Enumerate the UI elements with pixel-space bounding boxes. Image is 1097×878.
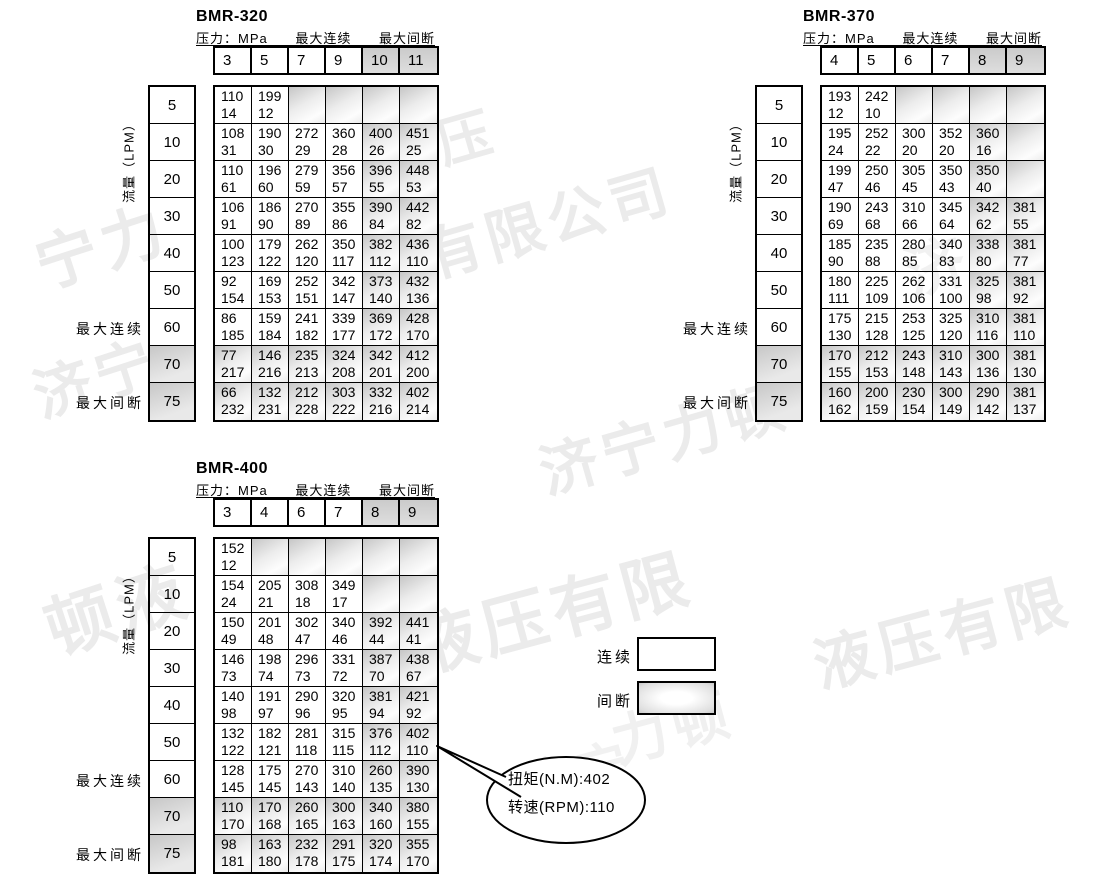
torque-value: 325	[976, 273, 1006, 290]
flow-value-column: 51020304050607075	[755, 85, 803, 422]
data-cell	[326, 87, 363, 124]
data-grid: 1101419912108311903027229360284002645125…	[213, 85, 439, 422]
watermark: 有限公司	[412, 143, 681, 294]
torque-value: 201	[258, 614, 288, 631]
torque-value: 380	[406, 799, 437, 816]
speed-value: 59	[295, 179, 325, 196]
pressure-header-cell: 9	[1007, 48, 1044, 73]
speed-value: 110	[406, 742, 437, 759]
torque-value: 442	[406, 199, 437, 216]
max-intermittent-row-label: 最大间断	[74, 393, 144, 413]
data-cell	[363, 576, 400, 613]
speed-value: 72	[332, 668, 362, 685]
speed-value: 70	[369, 668, 399, 685]
torque-value: 252	[865, 125, 895, 142]
speed-value: 30	[258, 142, 288, 159]
torque-value: 438	[406, 651, 437, 668]
speed-value: 97	[258, 705, 288, 722]
speed-value: 90	[258, 216, 288, 233]
speed-value: 159	[865, 401, 895, 418]
torque-value: 300	[976, 347, 1006, 364]
torque-value: 324	[332, 347, 362, 364]
speed-value: 130	[406, 779, 437, 796]
data-cell	[896, 87, 933, 124]
torque-value: 402	[406, 725, 437, 742]
torque-value: 241	[295, 310, 325, 327]
torque-value: 310	[976, 310, 1006, 327]
speed-value: 83	[939, 253, 969, 270]
speed-value: 49	[221, 631, 251, 648]
data-cell: 175145	[252, 761, 289, 798]
table-bmr-370: BMR-370 压力：MPa 最大连续 最大间断 456789 流量（LPM） …	[755, 8, 1047, 428]
data-cell: 382112	[363, 235, 400, 272]
data-cell	[1007, 161, 1044, 198]
speed-value: 217	[221, 364, 251, 381]
torque-value: 193	[828, 88, 858, 105]
torque-value: 212	[295, 384, 325, 401]
data-cell: 402214	[400, 383, 437, 420]
speed-value: 168	[258, 816, 288, 833]
data-cell: 182121	[252, 724, 289, 761]
data-cell	[289, 87, 326, 124]
pressure-header-cell: 7	[289, 48, 326, 73]
data-cell: 331100	[933, 272, 970, 309]
flow-value-column: 51020304050607075	[148, 85, 196, 422]
torque-value: 332	[369, 384, 399, 401]
torque-value: 432	[406, 273, 437, 290]
data-cell: 402110	[400, 724, 437, 761]
flow-value-cell: 50	[150, 724, 194, 761]
data-cell: 30247	[289, 613, 326, 650]
torque-value: 77	[221, 347, 251, 364]
speed-value: 14	[221, 105, 251, 122]
data-cell: 132231	[252, 383, 289, 420]
pressure-header-cell: 9	[326, 48, 363, 73]
data-cell: 39084	[363, 198, 400, 235]
speed-value: 111	[828, 290, 858, 307]
data-cell: 253125	[896, 309, 933, 346]
data-cell: 200159	[859, 383, 896, 420]
torque-value: 262	[295, 236, 325, 253]
data-cell: 19524	[822, 124, 859, 161]
torque-value: 191	[258, 688, 288, 705]
data-cell: 19947	[822, 161, 859, 198]
speed-value: 121	[258, 742, 288, 759]
data-cell: 34564	[933, 198, 970, 235]
speed-value: 142	[976, 401, 1006, 418]
data-cell: 175130	[822, 309, 859, 346]
flow-value-cell: 40	[150, 687, 194, 724]
max-intermittent-row-label: 最大间断	[74, 845, 144, 865]
data-cell: 369172	[363, 309, 400, 346]
torque-value: 235	[295, 347, 325, 364]
speed-value: 24	[221, 594, 251, 611]
speed-value: 185	[221, 327, 251, 344]
speed-value: 94	[369, 705, 399, 722]
max-intermittent-header-label: 最大间断	[986, 28, 1042, 44]
data-cell: 243148	[896, 346, 933, 383]
data-cell: 38770	[363, 650, 400, 687]
speed-value: 148	[902, 364, 932, 381]
data-cell	[400, 539, 437, 576]
speed-value: 41	[406, 631, 437, 648]
watermark: 液压有限	[803, 553, 1081, 705]
speed-value: 140	[332, 779, 362, 796]
speed-value: 43	[939, 179, 969, 196]
data-cell: 212153	[859, 346, 896, 383]
speed-value: 67	[406, 668, 437, 685]
torque-value: 152	[221, 540, 251, 557]
torque-value: 190	[258, 125, 288, 142]
speed-value: 231	[258, 401, 288, 418]
data-cell: 19069	[822, 198, 859, 235]
data-cell	[970, 87, 1007, 124]
data-cell: 39244	[363, 613, 400, 650]
speed-value: 74	[258, 668, 288, 685]
flow-value-cell: 20	[150, 161, 194, 198]
torque-value: 350	[939, 162, 969, 179]
pressure-header-cell: 6	[289, 500, 326, 525]
flow-axis-label: 流量（LPM）	[119, 117, 138, 203]
torque-value: 310	[332, 762, 362, 779]
torque-value: 441	[406, 614, 437, 631]
speed-value: 182	[295, 327, 325, 344]
data-cell: 38155	[1007, 198, 1044, 235]
data-cell: 350117	[326, 235, 363, 272]
speed-value: 92	[1013, 290, 1044, 307]
data-cell: 98181	[215, 835, 252, 872]
torque-value: 169	[258, 273, 288, 290]
data-cell: 320174	[363, 835, 400, 872]
data-cell: 43867	[400, 650, 437, 687]
table-bmr-400: BMR-400 压力：MPa 最大连续 最大间断 346789 流量（LPM） …	[148, 460, 440, 878]
torque-value: 381	[1013, 384, 1044, 401]
torque-value: 205	[258, 577, 288, 594]
data-cell: 11014	[215, 87, 252, 124]
max-continuous-row-label: 最大连续	[74, 771, 144, 791]
flow-value-cell: 30	[150, 650, 194, 687]
torque-value: 212	[865, 347, 895, 364]
data-cell: 373140	[363, 272, 400, 309]
speed-value: 147	[332, 290, 362, 307]
data-cell: 15049	[215, 613, 252, 650]
data-cell	[363, 87, 400, 124]
flow-value-cell: 75	[150, 835, 194, 872]
speed-value: 61	[221, 179, 251, 196]
data-cell: 310116	[970, 309, 1007, 346]
data-cell: 390130	[400, 761, 437, 798]
speed-value: 116	[976, 327, 1006, 344]
data-cell: 290142	[970, 383, 1007, 420]
torque-value: 215	[865, 310, 895, 327]
torque-value: 110	[221, 799, 251, 816]
data-cell: 34262	[970, 198, 1007, 235]
data-cell: 310140	[326, 761, 363, 798]
max-intermittent-header-label: 最大间断	[379, 480, 435, 496]
torque-value: 300	[902, 125, 932, 142]
data-cell: 110170	[215, 798, 252, 835]
data-cell: 169153	[252, 272, 289, 309]
data-cell: 376112	[363, 724, 400, 761]
speed-value: 95	[332, 705, 362, 722]
data-cell: 45125	[400, 124, 437, 161]
speed-value: 86	[332, 216, 362, 233]
data-cell: 86185	[215, 309, 252, 346]
torque-value: 154	[221, 577, 251, 594]
data-cell	[1007, 124, 1044, 161]
max-continuous-row-label: 最大连续	[681, 319, 751, 339]
data-cell: 34046	[326, 613, 363, 650]
flow-axis-label: 流量（LPM）	[119, 569, 138, 655]
torque-value: 199	[828, 162, 858, 179]
torque-value: 180	[828, 273, 858, 290]
speed-value: 201	[369, 364, 399, 381]
torque-value: 436	[406, 236, 437, 253]
torque-value: 272	[295, 125, 325, 142]
pressure-header-cells: 346789	[213, 498, 439, 527]
flow-value-cell: 5	[150, 539, 194, 576]
speed-value: 60	[258, 179, 288, 196]
speed-value: 64	[939, 216, 969, 233]
torque-value: 262	[902, 273, 932, 290]
speed-value: 69	[828, 216, 858, 233]
pressure-header-cell: 10	[363, 48, 400, 73]
torque-value: 381	[1013, 347, 1044, 364]
legend-continuous-label: 连续	[597, 646, 633, 667]
torque-value: 340	[369, 799, 399, 816]
data-cell: 342147	[326, 272, 363, 309]
torque-value: 232	[295, 836, 325, 853]
torque-value: 300	[939, 384, 969, 401]
torque-value: 303	[332, 384, 362, 401]
speed-value: 177	[332, 327, 362, 344]
torque-value: 400	[369, 125, 399, 142]
flow-value-cell: 60	[150, 761, 194, 798]
torque-value: 195	[828, 125, 858, 142]
legend-intermittent-label: 间断	[597, 690, 633, 711]
data-cell: 35657	[326, 161, 363, 198]
torque-value: 387	[369, 651, 399, 668]
data-cell: 291175	[326, 835, 363, 872]
torque-value: 428	[406, 310, 437, 327]
speed-value: 110	[406, 253, 437, 270]
data-cell	[1007, 87, 1044, 124]
speed-value: 91	[221, 216, 251, 233]
data-cell	[252, 539, 289, 576]
speed-value: 208	[332, 364, 362, 381]
data-cell: 30020	[896, 124, 933, 161]
speed-value: 26	[369, 142, 399, 159]
speed-value: 149	[939, 401, 969, 418]
torque-value: 310	[902, 199, 932, 216]
data-cell: 30818	[289, 576, 326, 613]
pressure-header-cell: 8	[970, 48, 1007, 73]
data-cell: 19874	[252, 650, 289, 687]
data-cell: 170155	[822, 346, 859, 383]
flow-value-cell: 70	[150, 346, 194, 383]
data-cell: 32598	[970, 272, 1007, 309]
torque-value: 279	[295, 162, 325, 179]
data-cell: 380155	[400, 798, 437, 835]
speed-value: 46	[332, 631, 362, 648]
torque-value: 291	[332, 836, 362, 853]
data-cell: 170168	[252, 798, 289, 835]
torque-value: 448	[406, 162, 437, 179]
flow-value-cell: 30	[757, 198, 801, 235]
speed-value: 45	[902, 179, 932, 196]
callout-text: 扭矩(N.M):402 转速(RPM):110	[508, 766, 615, 822]
data-cell: 29096	[289, 687, 326, 724]
speed-value: 122	[258, 253, 288, 270]
data-cell: 252151	[289, 272, 326, 309]
speed-value: 130	[1013, 364, 1044, 381]
speed-value: 31	[221, 142, 251, 159]
speed-value: 143	[295, 779, 325, 796]
data-cell: 44282	[400, 198, 437, 235]
torque-value: 331	[332, 651, 362, 668]
torque-value: 92	[221, 273, 251, 290]
data-cell: 232178	[289, 835, 326, 872]
data-cell: 19912	[252, 87, 289, 124]
flow-value-cell: 75	[150, 383, 194, 420]
torque-value: 182	[258, 725, 288, 742]
speed-value: 214	[406, 401, 437, 418]
data-cell: 31066	[896, 198, 933, 235]
torque-value: 340	[332, 614, 362, 631]
torque-value: 302	[295, 614, 325, 631]
speed-value: 16	[976, 142, 1006, 159]
data-cell	[326, 539, 363, 576]
pressure-header-cell: 7	[326, 500, 363, 525]
torque-value: 451	[406, 125, 437, 142]
speed-value: 120	[295, 253, 325, 270]
data-cell: 310143	[933, 346, 970, 383]
data-cell: 27089	[289, 198, 326, 235]
torque-value: 175	[258, 762, 288, 779]
torque-value: 421	[406, 688, 437, 705]
data-cell: 42192	[400, 687, 437, 724]
data-cell: 36016	[970, 124, 1007, 161]
speed-value: 84	[369, 216, 399, 233]
speed-value: 136	[406, 290, 437, 307]
table-header-row: 压力：MPa 最大连续 最大间断	[196, 480, 435, 498]
data-cell: 35043	[933, 161, 970, 198]
pressure-header-cell: 3	[215, 48, 252, 73]
torque-value: 108	[221, 125, 251, 142]
data-cell: 33880	[970, 235, 1007, 272]
speed-value: 155	[828, 364, 858, 381]
speed-value: 175	[332, 853, 362, 870]
speed-value: 12	[828, 105, 858, 122]
data-cell: 20148	[252, 613, 289, 650]
flow-value-cell: 10	[150, 576, 194, 613]
torque-value: 196	[258, 162, 288, 179]
flow-value-cell: 60	[757, 309, 801, 346]
data-cell: 77217	[215, 346, 252, 383]
speed-value: 162	[828, 401, 858, 418]
torque-value: 163	[258, 836, 288, 853]
data-cell: 11061	[215, 161, 252, 198]
torque-value: 280	[902, 236, 932, 253]
data-cell: 412200	[400, 346, 437, 383]
speed-value: 216	[258, 364, 288, 381]
data-cell: 215128	[859, 309, 896, 346]
torque-value: 199	[258, 88, 288, 105]
speed-value: 12	[221, 557, 251, 574]
data-cell: 241182	[289, 309, 326, 346]
torque-value: 360	[976, 125, 1006, 142]
torque-value: 253	[902, 310, 932, 327]
data-cell: 15424	[215, 576, 252, 613]
data-cell: 355170	[400, 835, 437, 872]
data-cell: 29673	[289, 650, 326, 687]
torque-value: 300	[332, 799, 362, 816]
speed-value: 88	[865, 253, 895, 270]
torque-value: 355	[332, 199, 362, 216]
speed-value: 118	[295, 742, 325, 759]
torque-value: 170	[828, 347, 858, 364]
data-cell: 39655	[363, 161, 400, 198]
torque-value: 342	[976, 199, 1006, 216]
torque-value: 175	[828, 310, 858, 327]
flow-value-cell: 40	[757, 235, 801, 272]
data-cell: 180111	[822, 272, 859, 309]
pressure-header-cell: 7	[933, 48, 970, 73]
speed-value: 123	[221, 253, 251, 270]
data-cell: 36028	[326, 124, 363, 161]
speed-value: 89	[295, 216, 325, 233]
speed-value: 170	[406, 327, 437, 344]
data-cell: 381130	[1007, 346, 1044, 383]
data-cell: 38177	[1007, 235, 1044, 272]
max-continuous-header-label: 最大连续	[295, 28, 351, 44]
speed-value: 24	[828, 142, 858, 159]
pressure-header-cell: 4	[252, 500, 289, 525]
speed-value: 154	[902, 401, 932, 418]
torque-value: 281	[295, 725, 325, 742]
data-cell	[933, 87, 970, 124]
data-cell	[400, 87, 437, 124]
torque-value: 320	[332, 688, 362, 705]
torque-value: 369	[369, 310, 399, 327]
torque-value: 106	[221, 199, 251, 216]
speed-value: 90	[828, 253, 858, 270]
torque-value: 402	[406, 384, 437, 401]
table-bmr-320: BMR-320 压力：MPa 最大连续 最大间断 35791011 流量（LPM…	[148, 8, 440, 428]
data-cell: 432136	[400, 272, 437, 309]
data-cell: 260165	[289, 798, 326, 835]
speed-value: 47	[828, 179, 858, 196]
flow-value-cell: 40	[150, 235, 194, 272]
torque-value: 320	[369, 836, 399, 853]
data-cell: 260135	[363, 761, 400, 798]
speed-value: 96	[295, 705, 325, 722]
max-continuous-row-label: 最大连续	[74, 319, 144, 339]
speed-value: 170	[406, 853, 437, 870]
data-cell: 19197	[252, 687, 289, 724]
speed-value: 170	[221, 816, 251, 833]
data-cell: 66232	[215, 383, 252, 420]
speed-value: 17	[332, 594, 362, 611]
torque-value: 132	[221, 725, 251, 742]
torque-value: 66	[221, 384, 251, 401]
torque-value: 345	[939, 199, 969, 216]
data-cell: 128145	[215, 761, 252, 798]
pressure-header-cells: 35791011	[213, 46, 439, 75]
pressure-header-cell: 9	[400, 500, 437, 525]
data-cell: 159184	[252, 309, 289, 346]
data-cell: 25222	[859, 124, 896, 161]
